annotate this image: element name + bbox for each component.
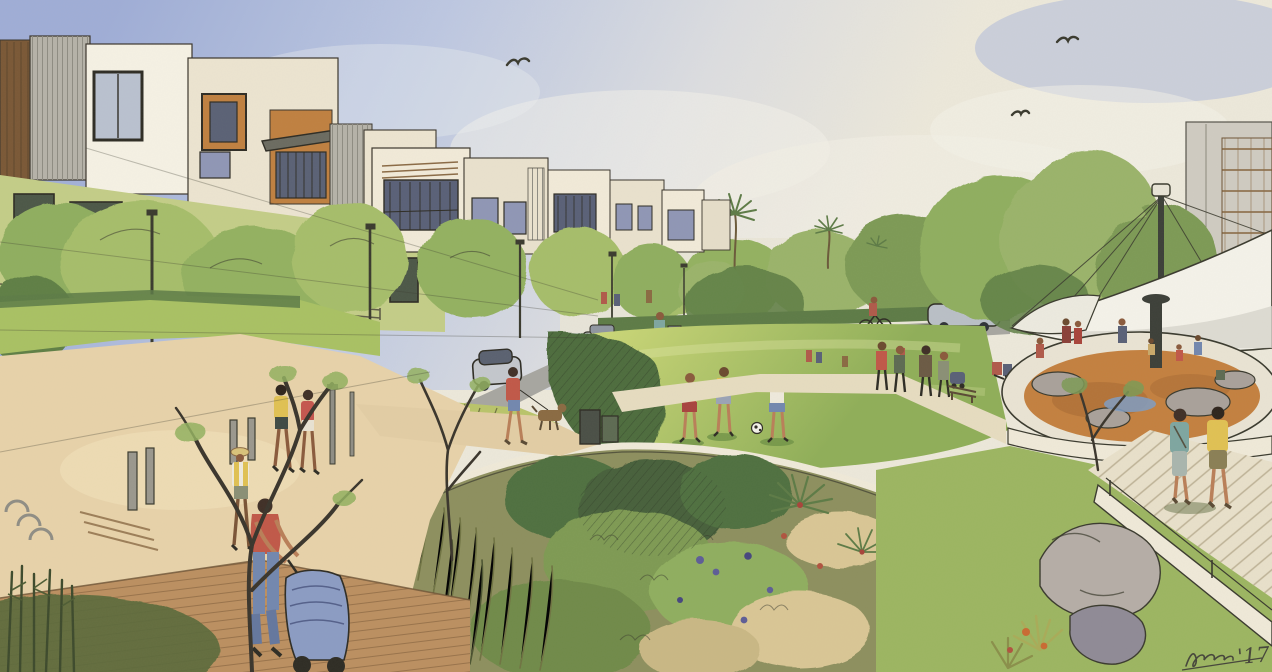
watercolor-rendering: '17 xyxy=(0,0,1272,672)
paper-grain-overlay xyxy=(0,0,1272,672)
illustration-canvas: '17 xyxy=(0,0,1272,672)
